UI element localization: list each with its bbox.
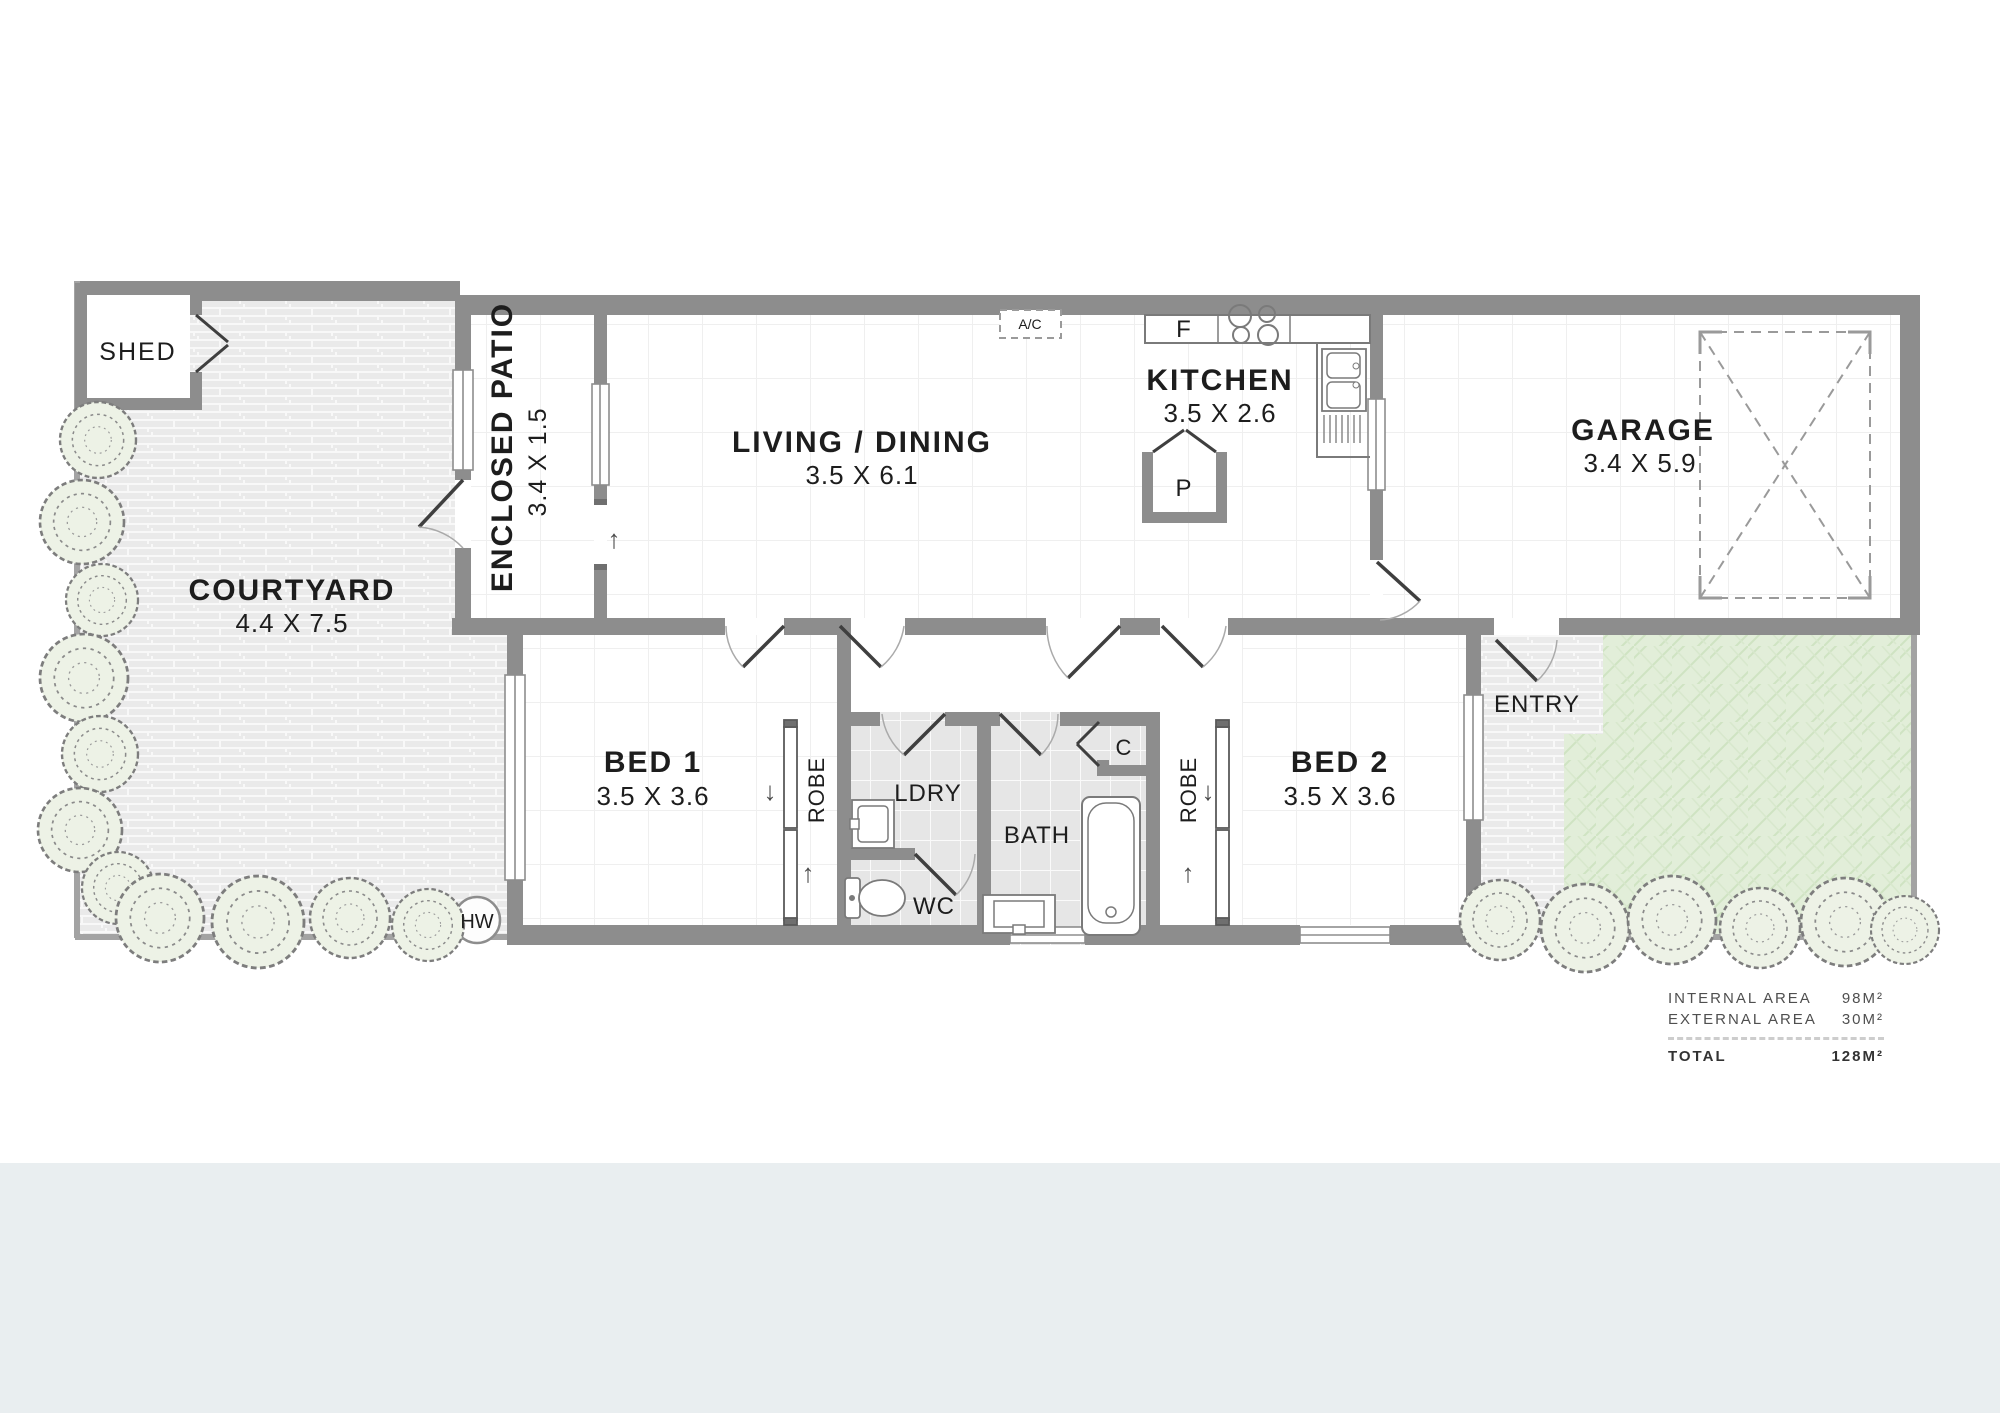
bed2-dims: 3.5 X 3.6 (1283, 781, 1396, 811)
bathtub-icon (1082, 797, 1140, 935)
internal-area-label: INTERNAL AREA (1668, 988, 1812, 1009)
laundry-tub-icon (850, 800, 894, 848)
external-area-value: 30M² (1842, 1009, 1884, 1030)
external-area-row: EXTERNAL AREA 30M² (1668, 1009, 1884, 1030)
robe1-arrow-down: ↓ (764, 776, 777, 806)
entry-label: ENTRY (1494, 691, 1580, 718)
robe1-arrow-up: ↑ (802, 858, 815, 888)
ac-label: A/C (1018, 316, 1041, 332)
garage-dims: 3.4 X 5.9 (1583, 448, 1696, 478)
toilet-icon (845, 878, 905, 918)
sink-icon (1322, 349, 1366, 411)
dishwasher-icon (1324, 415, 1360, 443)
external-area-label: EXTERNAL AREA (1668, 1009, 1817, 1030)
total-area-label: TOTAL (1668, 1046, 1727, 1067)
bed1-label: BED 1 (604, 746, 702, 779)
ldry-label: LDRY (894, 780, 962, 807)
robe1-label: ROBE (804, 757, 829, 823)
bath-label: BATH (1004, 822, 1070, 849)
pantry-label: P (1175, 475, 1192, 502)
shed-label: SHED (99, 338, 176, 366)
kitchen-dims: 3.5 X 2.6 (1163, 398, 1276, 428)
garage-label: GARAGE (1571, 414, 1715, 447)
total-area-row: TOTAL 128M² (1668, 1046, 1884, 1067)
area-divider (1668, 1037, 1884, 1040)
footer: Coronis 19/49 Handford Road, Zillmere Th… (0, 1163, 2000, 1413)
bed1-dims: 3.5 X 3.6 (596, 781, 709, 811)
living-label: LIVING / DINING (732, 426, 992, 459)
wc-label: WC (913, 893, 955, 920)
internal-area-value: 98M² (1842, 988, 1884, 1009)
robe2-arrow-up: ↑ (1182, 858, 1195, 888)
courtyard-dims: 4.4 X 7.5 (235, 608, 348, 638)
vanity-icon (983, 895, 1055, 934)
patio-label: ENCLOSED PATIO (486, 302, 519, 592)
hot-water-label: HW (460, 911, 493, 933)
living-dims: 3.5 X 6.1 (805, 460, 918, 490)
fridge-label: F (1176, 316, 1192, 343)
floorplan-drawing: SHED COURTYARD 4.4 X 7.5 ENCLOSED PATIO … (0, 0, 2000, 1160)
internal-area-row: INTERNAL AREA 98M² (1668, 988, 1884, 1009)
patio-dims: 3.4 X 1.5 (524, 407, 552, 516)
floorplan-page: SHED COURTYARD 4.4 X 7.5 ENCLOSED PATIO … (0, 0, 2000, 1413)
robe2-label: ROBE (1176, 757, 1201, 823)
courtyard-label: COURTYARD (189, 574, 396, 607)
area-summary: INTERNAL AREA 98M² EXTERNAL AREA 30M² TO… (1668, 988, 1884, 1067)
robe2-arrow-down: ↓ (1202, 776, 1215, 806)
cupboard-label: C (1116, 735, 1133, 760)
patio-door-arrow: ↑ (608, 524, 621, 554)
kitchen-label: KITCHEN (1146, 364, 1293, 397)
total-area-value: 128M² (1831, 1046, 1884, 1067)
bed2-label: BED 2 (1291, 746, 1389, 779)
